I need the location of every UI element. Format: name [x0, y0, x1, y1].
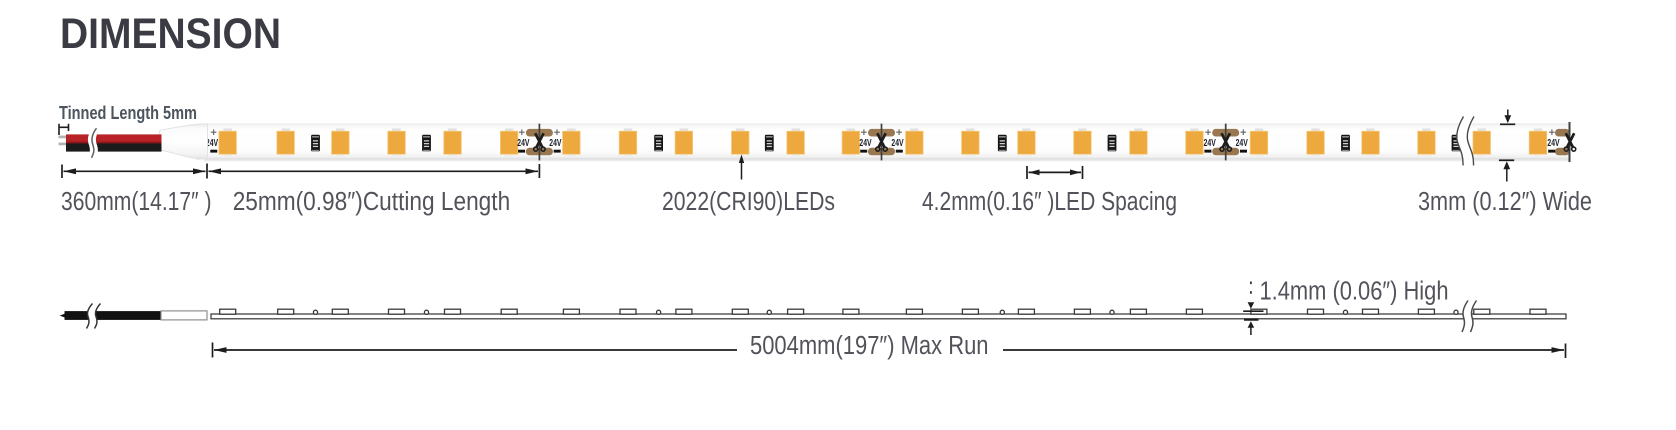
- svg-text:5004mm(197″) Max Run: 5004mm(197″) Max Run: [750, 332, 989, 360]
- svg-text:3mm (0.12″) Wide: 3mm (0.12″) Wide: [1418, 188, 1592, 216]
- svg-text:2022(CRI90)LEDs: 2022(CRI90)LEDs: [662, 188, 835, 216]
- svg-text:24V: 24V: [859, 138, 871, 149]
- svg-text:360mm(14.17″ ): 360mm(14.17″ ): [61, 188, 212, 216]
- svg-text:4.2mm(0.16″ )LED Spacing: 4.2mm(0.16″ )LED Spacing: [922, 188, 1177, 216]
- svg-text:24V: 24V: [549, 138, 561, 149]
- svg-text:24V: 24V: [1204, 138, 1216, 149]
- svg-text:1.4mm (0.06″) High: 1.4mm (0.06″) High: [1260, 278, 1449, 306]
- svg-text:24V: 24V: [517, 138, 529, 149]
- svg-text:25mm(0.98″)Cutting Length: 25mm(0.98″)Cutting Length: [233, 188, 511, 216]
- svg-text:Tinned Length 5mm: Tinned Length 5mm: [59, 102, 197, 123]
- svg-text:24V: 24V: [1236, 138, 1248, 149]
- svg-text:DIMENSION: DIMENSION: [60, 11, 281, 58]
- svg-text:24V: 24V: [1547, 138, 1559, 149]
- svg-text:24V: 24V: [891, 138, 903, 149]
